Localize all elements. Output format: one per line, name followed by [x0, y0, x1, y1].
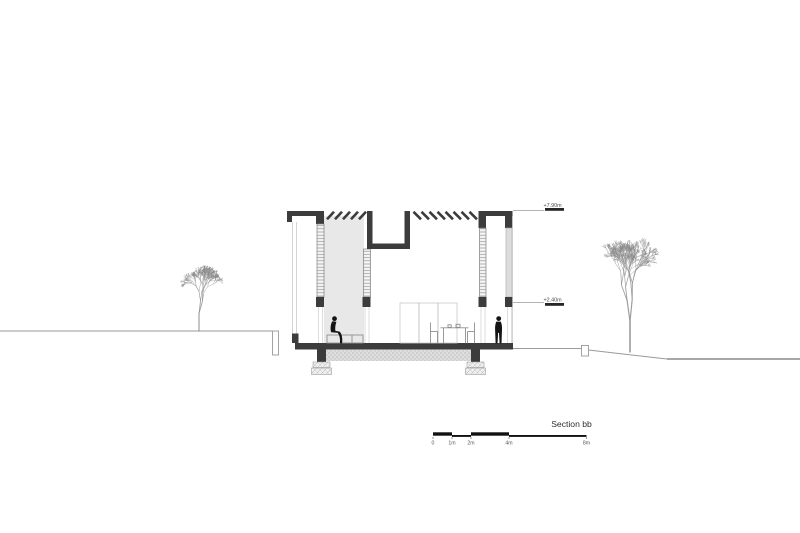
- ground-right: [513, 346, 800, 360]
- stone-footing-left: [312, 362, 332, 375]
- level-marker-lintel: +2.40m: [513, 298, 564, 306]
- ground-left: [0, 331, 279, 355]
- glass-column-right-edge: [505, 216, 513, 343]
- scale-label-4m: 4m: [505, 441, 512, 447]
- shaded-volume: [324, 216, 364, 343]
- floor-slab: [295, 343, 513, 350]
- right-parapet: [479, 211, 513, 228]
- standing-person-figure: [495, 316, 502, 343]
- left-tree: [180, 265, 223, 331]
- roof-well: [367, 211, 410, 249]
- roof-rafters-right: [414, 212, 478, 220]
- scale-label-2m: 2m: [467, 441, 474, 447]
- chair-left: [431, 323, 438, 344]
- right-tree: [602, 238, 660, 353]
- glass-partition: [400, 303, 457, 343]
- ground-curb-right: [582, 346, 589, 357]
- dining-table: [441, 324, 469, 343]
- pier-right: [471, 350, 480, 363]
- section-drawing-sheet: +7.90m +2.40m Section bb 0 1m 2m 4m 8m: [0, 0, 800, 533]
- brick-column-a: [316, 211, 324, 343]
- ground-curb-left: [273, 331, 279, 355]
- stone-footing-right: [466, 362, 486, 375]
- chair-right: [468, 323, 475, 344]
- dining-set: [431, 323, 475, 344]
- left-wall-base: [292, 334, 299, 344]
- section-drawing: +7.90m +2.40m Section bb 0 1m 2m 4m 8m: [0, 0, 800, 533]
- scale-label-1m: 1m: [448, 441, 455, 447]
- gravel-bed: [326, 350, 471, 362]
- scale-label-8m: 8m: [583, 441, 590, 447]
- scale-bar: 0 1m 2m 4m 8m: [432, 432, 591, 446]
- lintel-level-label: +2.40m: [544, 298, 563, 304]
- level-marker-roof: +7.90m: [513, 203, 564, 211]
- pier-left: [317, 350, 326, 363]
- floor-structure: [295, 343, 513, 375]
- scale-label-0: 0: [432, 441, 435, 447]
- drawing-title: Section bb: [551, 419, 592, 429]
- brick-column-c: [479, 228, 487, 343]
